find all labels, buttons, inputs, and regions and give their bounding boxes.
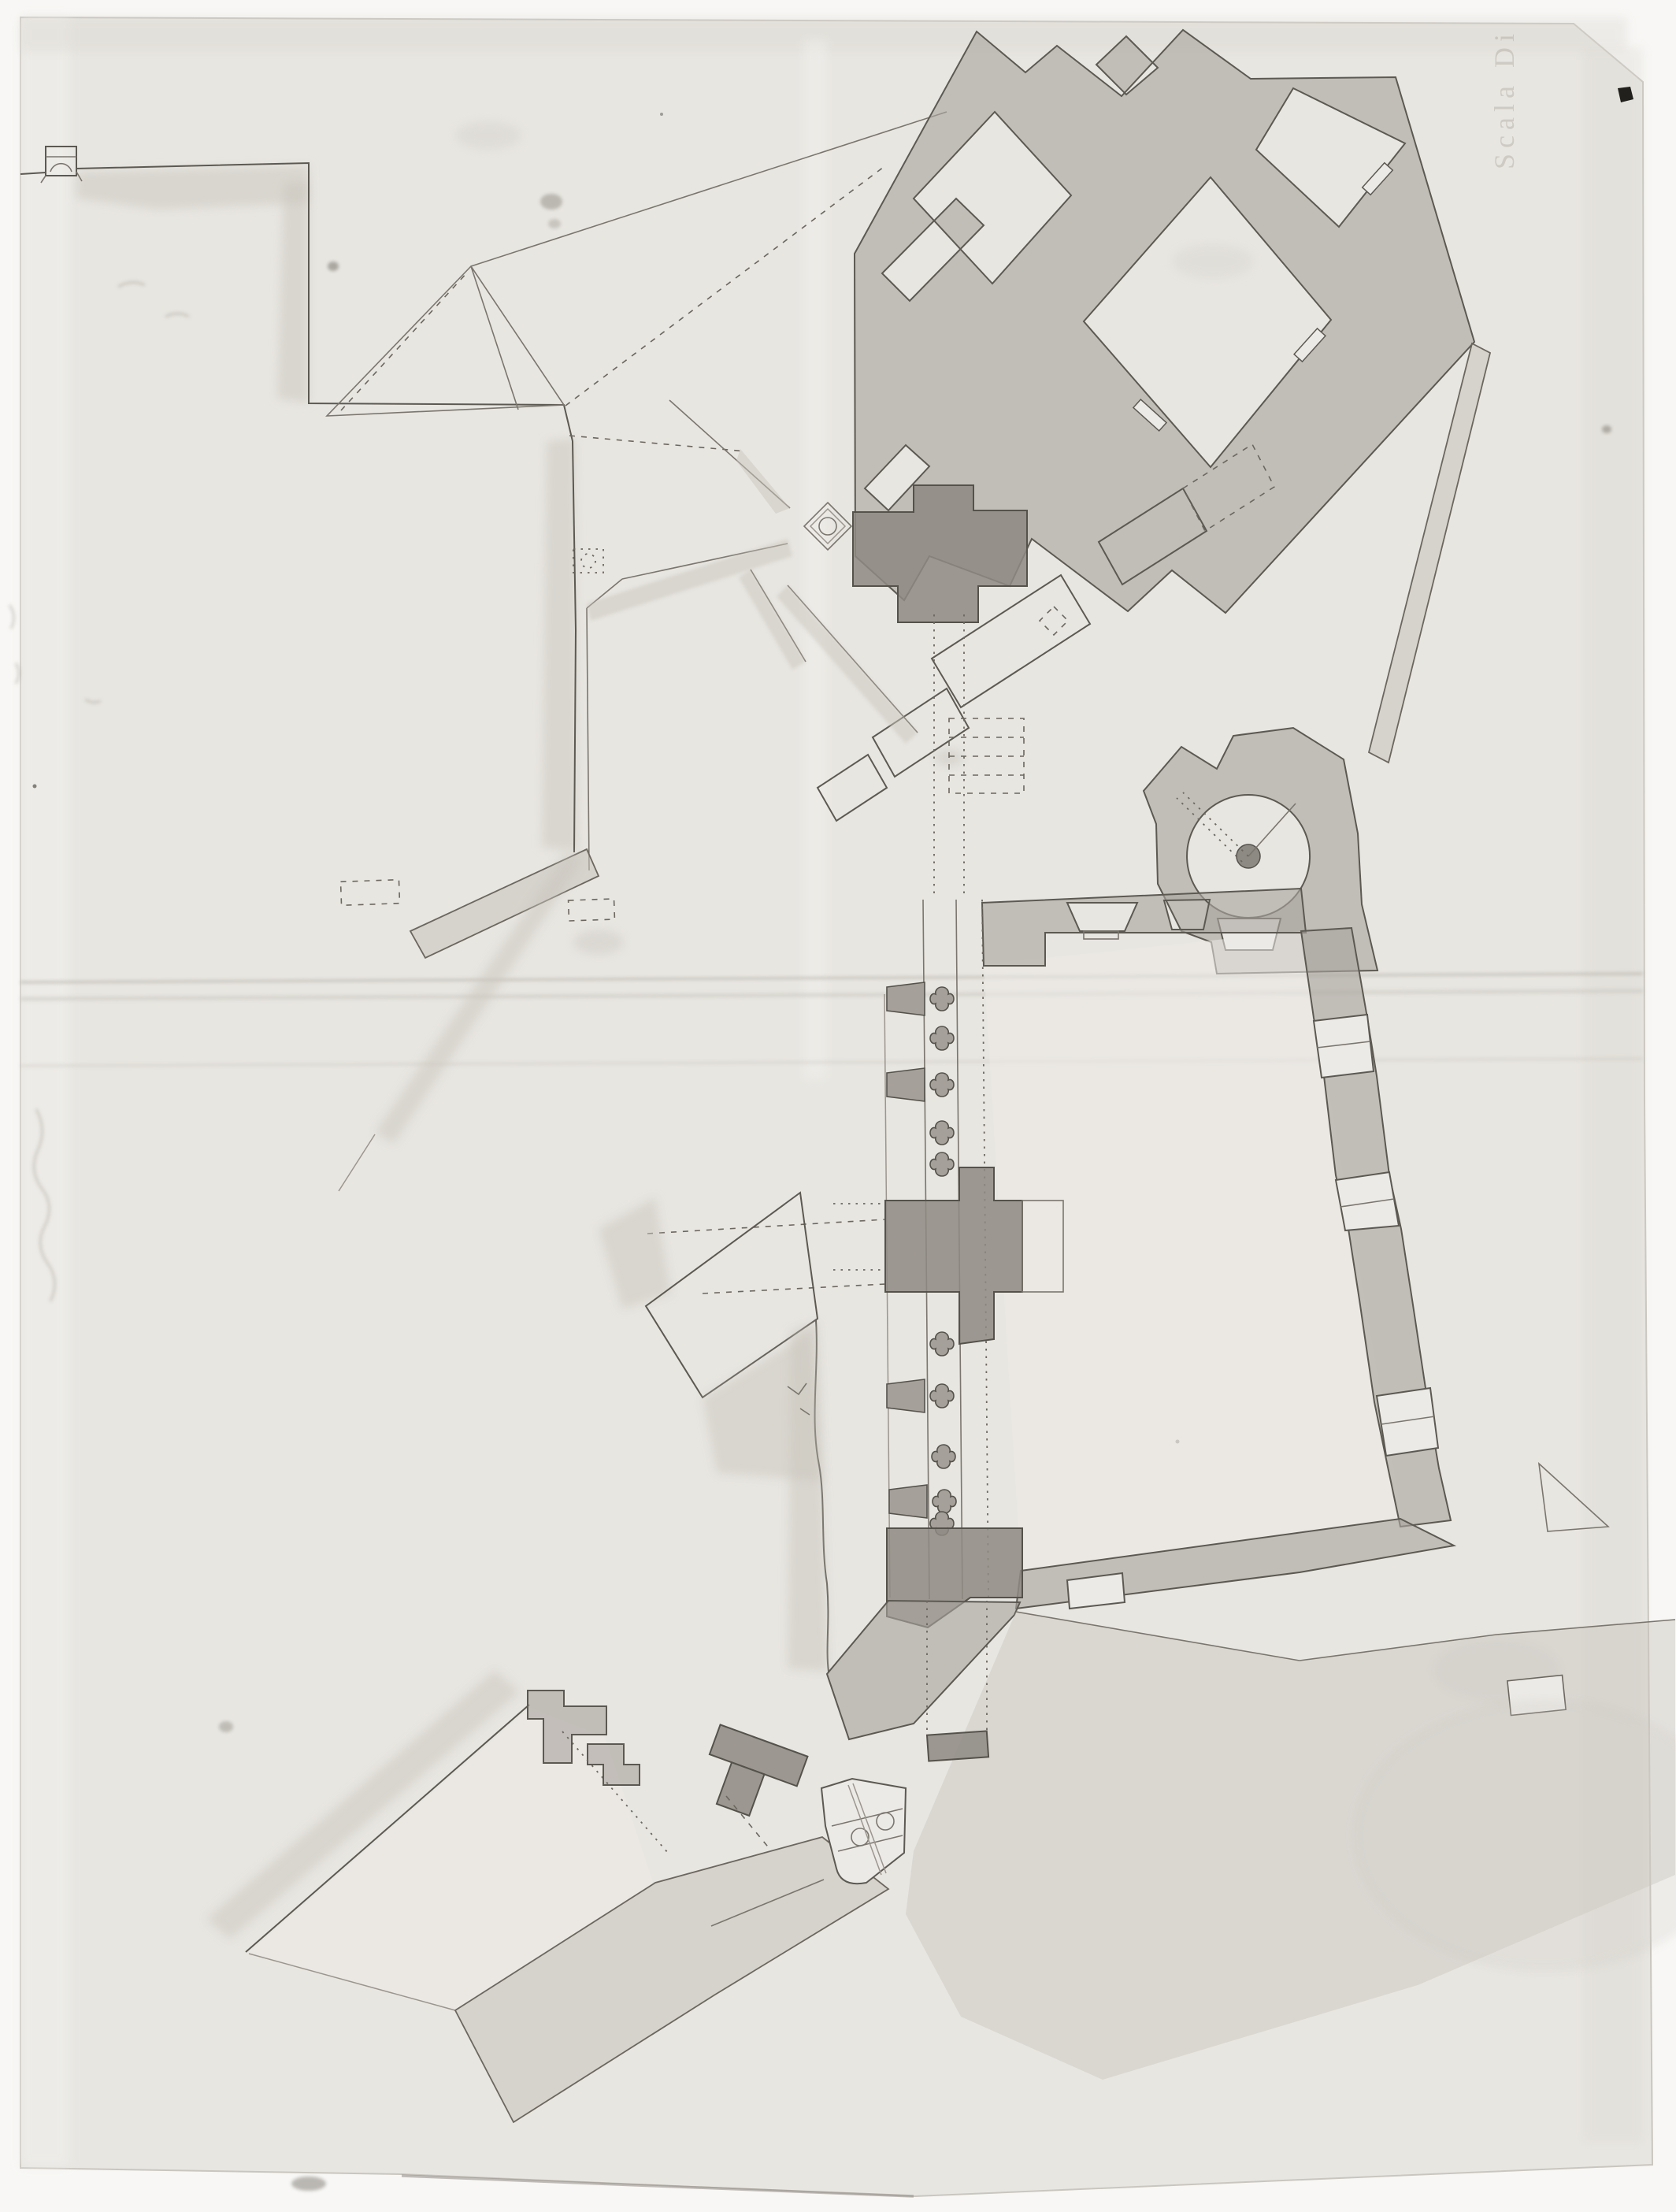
scanned-plan-sheet: Scala Di xyxy=(0,0,1676,2212)
south-wall-door xyxy=(1067,1573,1125,1609)
vertical-fold-crease xyxy=(803,39,827,1079)
scale-note: Scala Di xyxy=(1489,28,1520,169)
portal-pier xyxy=(927,1731,988,1761)
plan-drawing: Scala Di xyxy=(0,0,1676,2212)
paper-left-light-strip xyxy=(20,17,69,2166)
